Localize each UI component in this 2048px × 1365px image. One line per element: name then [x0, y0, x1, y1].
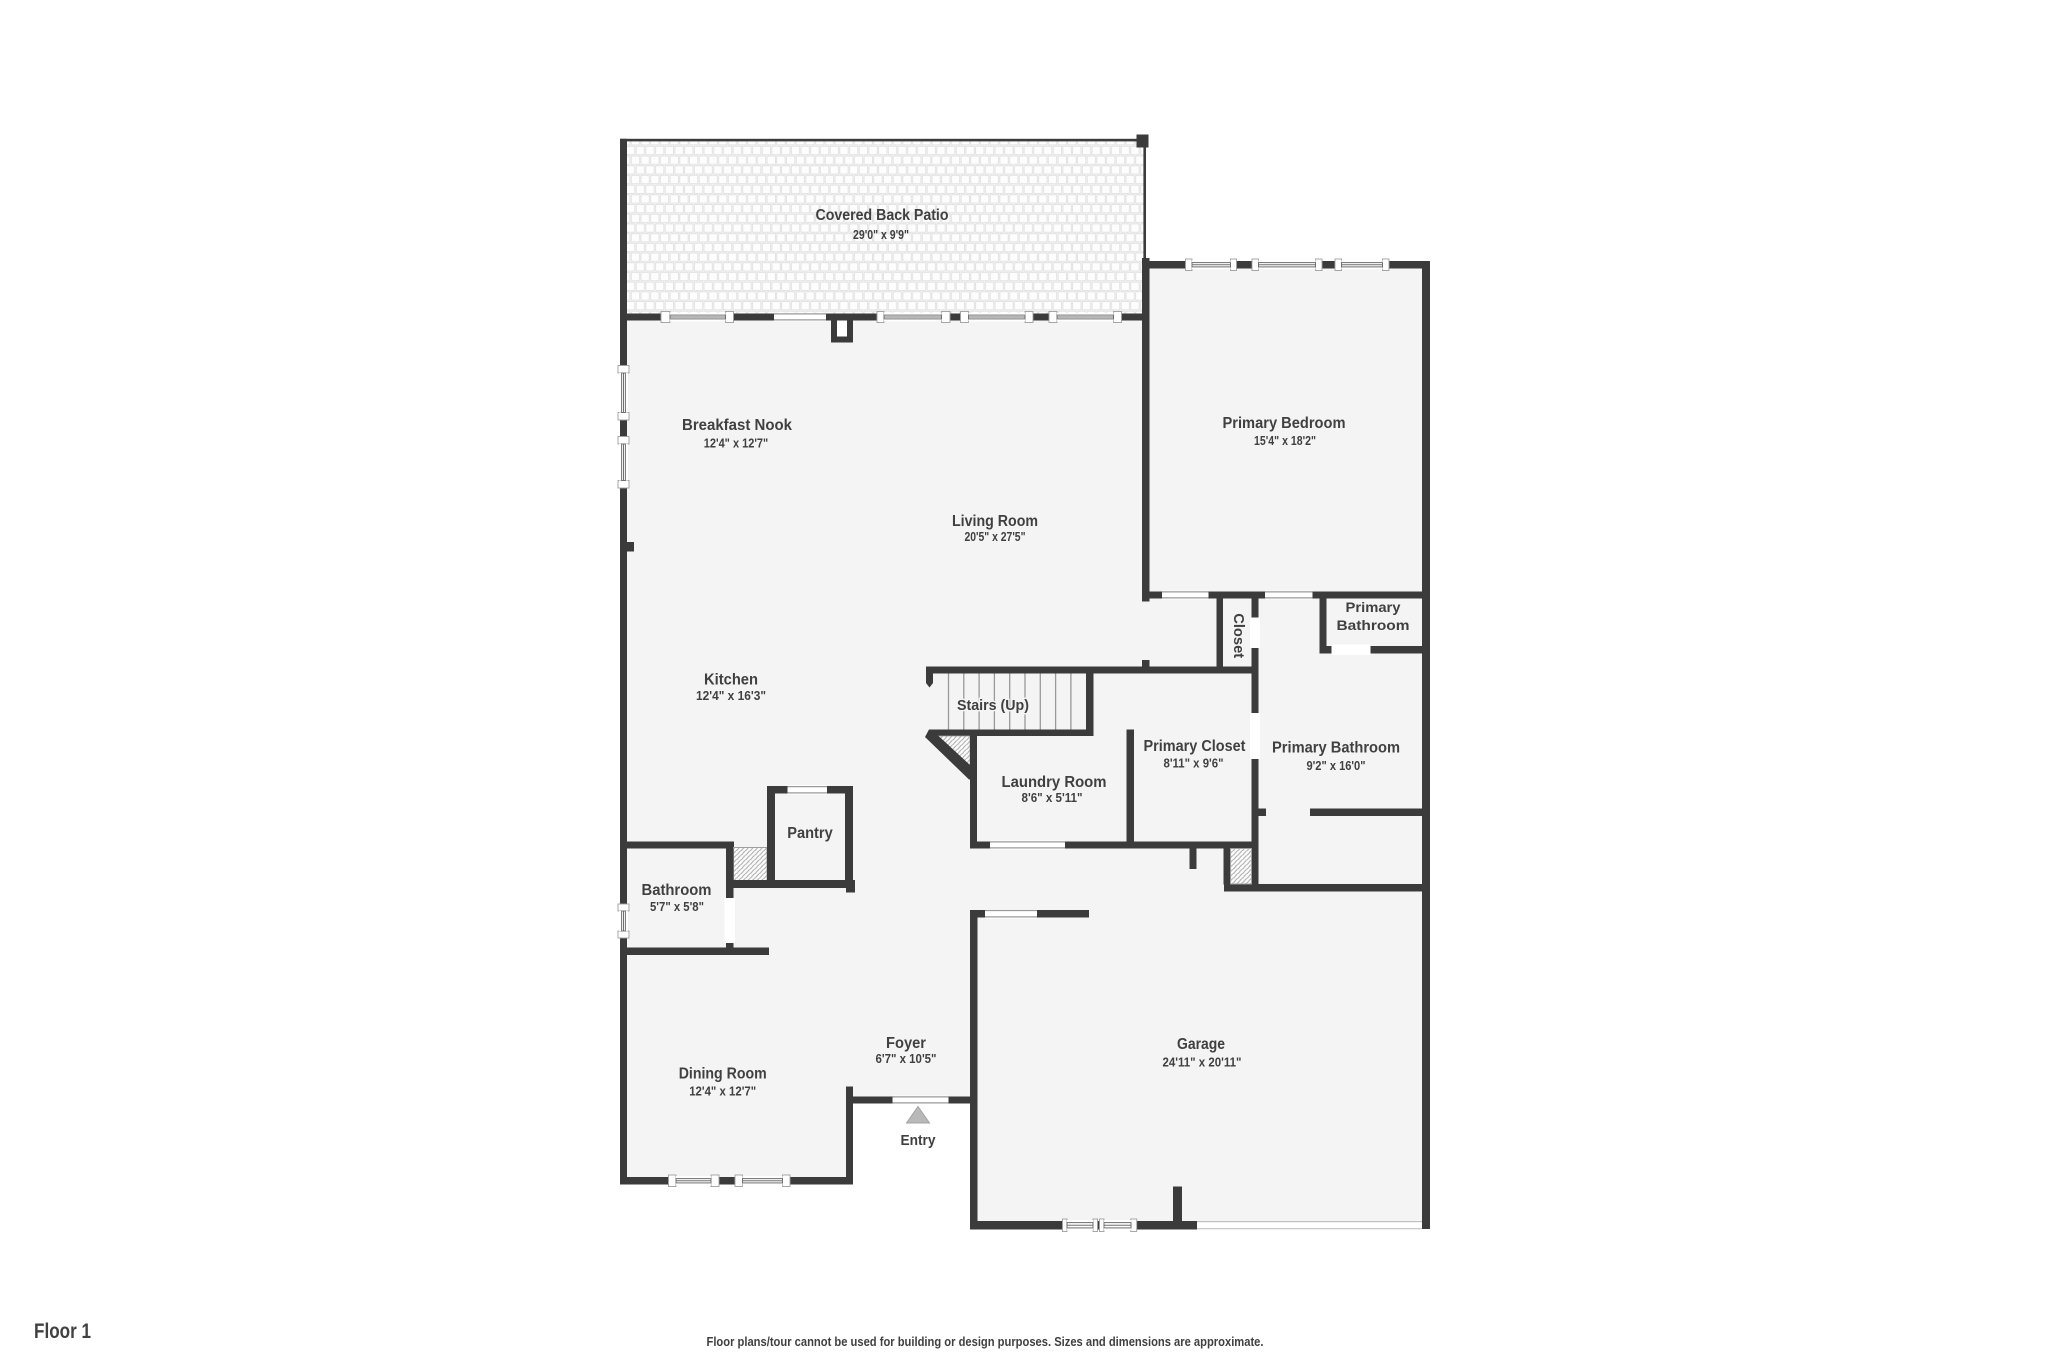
svg-text:Primary: Primary — [1346, 599, 1401, 615]
svg-text:Pantry: Pantry — [787, 825, 833, 842]
svg-text:Garage: Garage — [1177, 1036, 1225, 1053]
svg-text:Floor 1: Floor 1 — [34, 1319, 91, 1343]
svg-text:Foyer: Foyer — [886, 1035, 926, 1052]
svg-text:Primary Closet: Primary Closet — [1144, 738, 1246, 755]
svg-text:Closet: Closet — [1230, 613, 1247, 658]
svg-text:Primary Bathroom: Primary Bathroom — [1272, 740, 1400, 757]
svg-text:Bathroom: Bathroom — [642, 882, 712, 899]
svg-text:12'4" x 12'7": 12'4" x 12'7" — [689, 1084, 756, 1099]
svg-text:Living Room: Living Room — [952, 513, 1038, 530]
svg-text:Floor plans/tour cannot be use: Floor plans/tour cannot be used for buil… — [707, 1334, 1264, 1349]
svg-text:Kitchen: Kitchen — [704, 672, 758, 689]
svg-text:Laundry Room: Laundry Room — [1002, 774, 1107, 791]
svg-text:9'2" x 16'0": 9'2" x 16'0" — [1307, 758, 1366, 773]
svg-text:Bathroom: Bathroom — [1337, 617, 1410, 633]
svg-text:12'4" x 12'7": 12'4" x 12'7" — [704, 436, 769, 451]
svg-text:12'4" x 16'3": 12'4" x 16'3" — [696, 688, 766, 703]
svg-text:24'11" x 20'11": 24'11" x 20'11" — [1163, 1055, 1242, 1070]
svg-text:Covered Back Patio: Covered Back Patio — [816, 207, 949, 224]
svg-text:8'11" x 9'6": 8'11" x 9'6" — [1164, 756, 1224, 771]
svg-text:Breakfast Nook: Breakfast Nook — [682, 417, 792, 434]
svg-text:Dining Room: Dining Room — [679, 1066, 767, 1083]
svg-text:6'7" x 10'5": 6'7" x 10'5" — [876, 1051, 937, 1066]
svg-text:29'0" x 9'9": 29'0" x 9'9" — [853, 227, 909, 242]
svg-text:5'7" x 5'8": 5'7" x 5'8" — [650, 899, 704, 914]
svg-text:20'5" x 27'5": 20'5" x 27'5" — [965, 529, 1026, 544]
svg-text:8'6" x 5'11": 8'6" x 5'11" — [1022, 790, 1083, 805]
svg-text:Entry: Entry — [901, 1133, 936, 1149]
svg-text:15'4" x 18'2": 15'4" x 18'2" — [1254, 433, 1316, 448]
svg-text:Stairs (Up): Stairs (Up) — [957, 697, 1029, 714]
svg-text:Primary Bedroom: Primary Bedroom — [1223, 415, 1346, 432]
